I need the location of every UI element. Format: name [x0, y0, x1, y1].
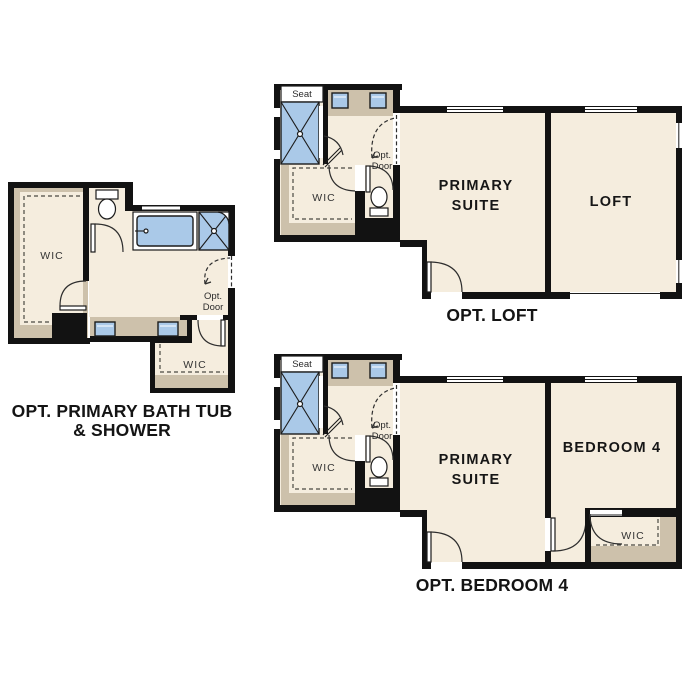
bedroom4-plan-title: OPT. BEDROOM 4 — [397, 576, 587, 595]
opt-door-label-2: Door — [372, 431, 393, 442]
primary-suite-label-2: SUITE — [452, 198, 501, 214]
shower-fixture — [199, 212, 229, 250]
wic-label: WIC — [312, 462, 335, 474]
bathtub-fixture — [133, 212, 197, 250]
wic-right-label: WIC — [183, 359, 206, 371]
loft-label: LOFT — [590, 194, 633, 210]
loft-plan: Seat WIC Opt. Door PRIMARY SUITE LOFT — [274, 84, 682, 299]
bedroom4-plan: Seat WIC Opt. Door PRIMARY SUITE BEDROOM… — [274, 354, 682, 569]
opt-door-label-1: Opt. — [373, 150, 391, 161]
bath-plan-diagram: WIC WIC Opt. Door — [8, 178, 240, 400]
wic-label: WIC — [312, 192, 335, 204]
primary-suite-label-1: PRIMARY — [439, 178, 514, 194]
seat-label: Seat — [292, 89, 312, 100]
right-plans-diagram: Seat WIC Opt. Door PRIMARY SUITE LOFT Se… — [272, 78, 687, 608]
opt-door-label-1: Opt. — [204, 291, 222, 302]
opt-door-label-1: Opt. — [373, 420, 391, 431]
toilet-fixture — [96, 190, 118, 219]
primary-suite-label-2: SUITE — [452, 472, 501, 488]
loft-plan-title: OPT. LOFT — [417, 306, 567, 325]
bath-plan-title: OPT. PRIMARY BATH TUB & SHOWER — [0, 402, 244, 440]
floorplan-sheet: { "colors": { "wall": "#121212", "floor"… — [0, 0, 687, 687]
bedroom4-label: BEDROOM 4 — [563, 440, 662, 456]
wic-left-label: WIC — [40, 250, 63, 262]
primary-suite-label-1: PRIMARY — [439, 452, 514, 468]
opt-door-label-2: Door — [203, 302, 224, 313]
bedroom4-wic-label: WIC — [621, 530, 644, 542]
opt-door-label-2: Door — [372, 161, 393, 172]
seat-label: Seat — [292, 359, 312, 370]
